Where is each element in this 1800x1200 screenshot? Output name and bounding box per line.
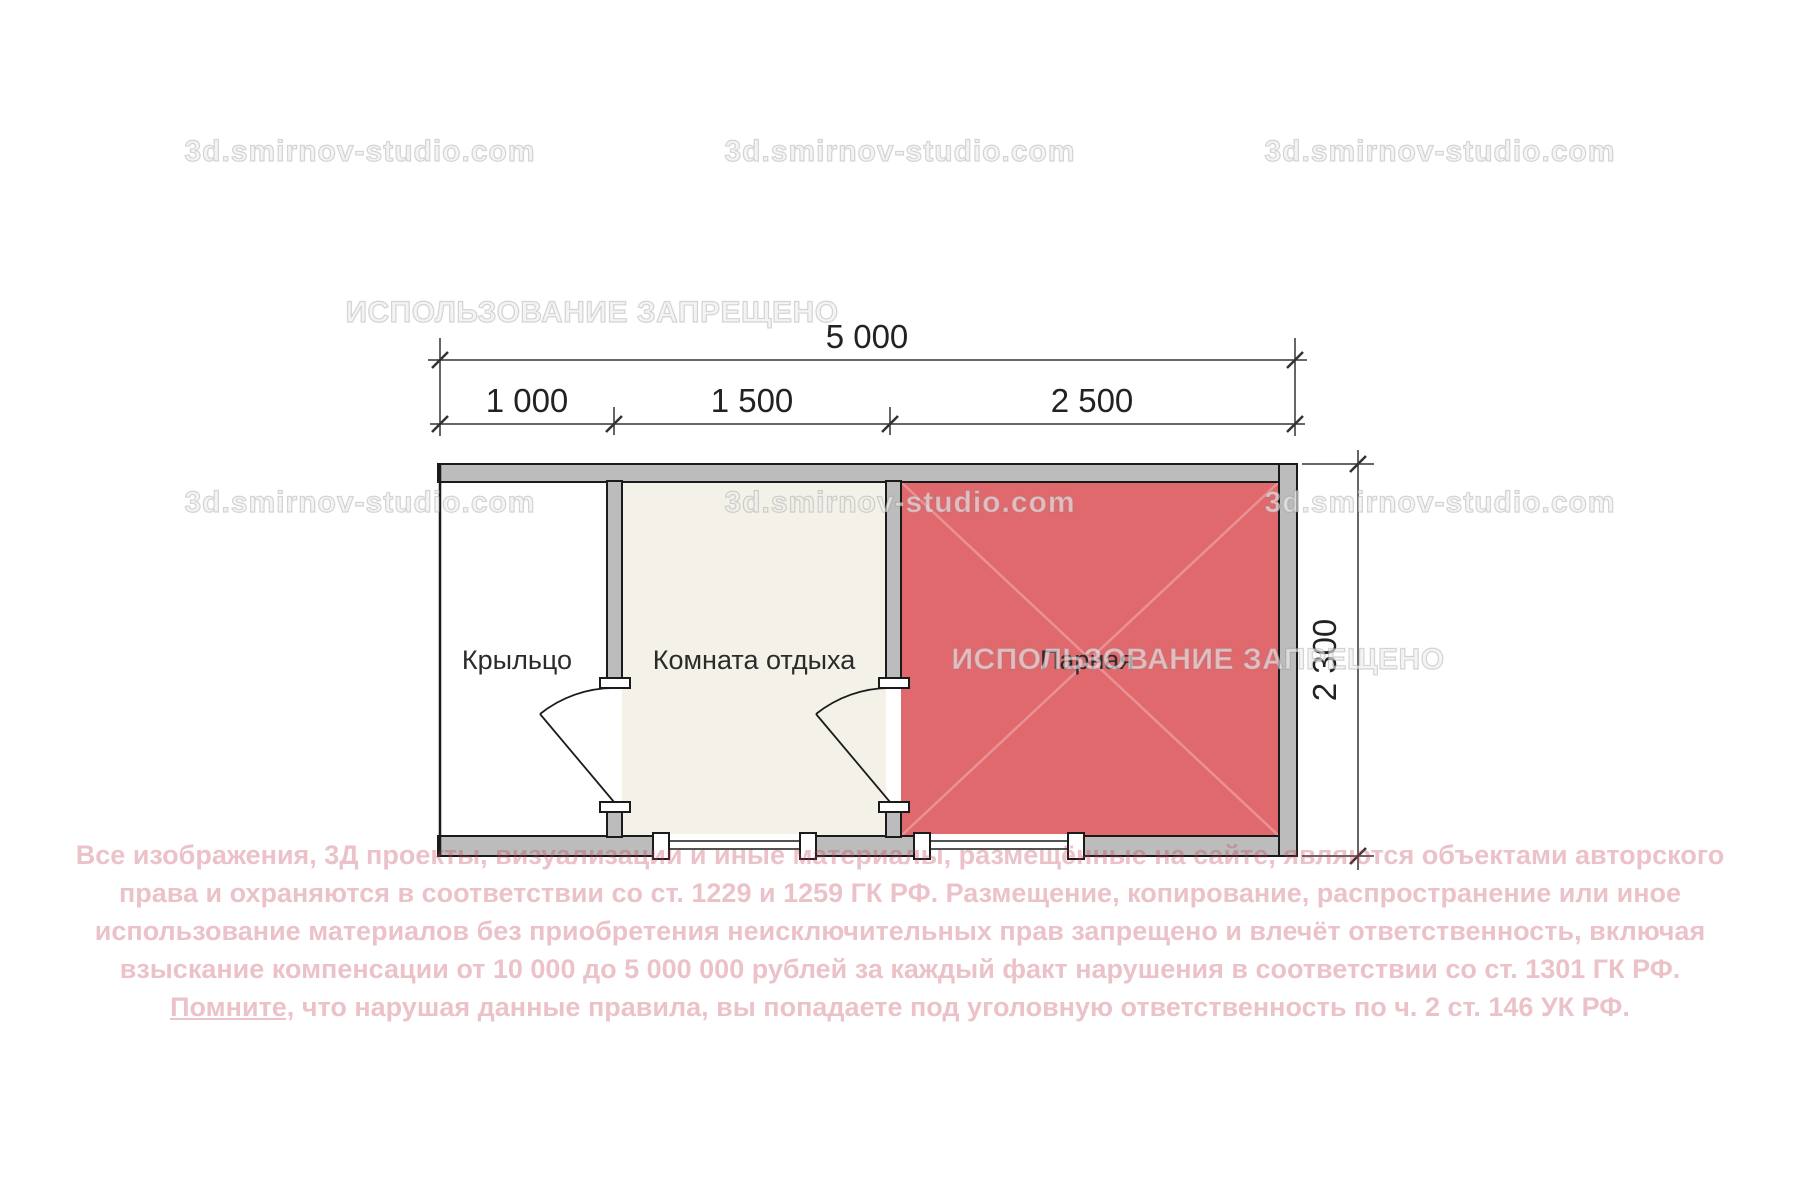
right-wall bbox=[1279, 464, 1297, 856]
room-label-porch: Крыльцо bbox=[462, 645, 572, 675]
floor-plan-page: Крыльцо Комната отдыха Парная bbox=[0, 0, 1800, 1200]
room-label-steam: Парная bbox=[1040, 645, 1134, 675]
dim-value-segment-2: 1 500 bbox=[711, 382, 794, 419]
partition-porch-lounge-stub bbox=[607, 812, 622, 837]
partition-lounge-steam bbox=[886, 481, 901, 678]
dim-value-height: 2 300 bbox=[1306, 619, 1343, 702]
top-wall bbox=[438, 464, 1297, 482]
window-steam bbox=[914, 833, 1084, 859]
door-jamb bbox=[879, 802, 909, 812]
partition-porch-lounge bbox=[607, 481, 622, 678]
floor-plan-drawing: Крыльцо Комната отдыха Парная bbox=[0, 0, 1800, 1200]
door-leaf bbox=[540, 714, 614, 802]
door-porch-lounge bbox=[540, 678, 630, 812]
partition-lounge-steam-stub bbox=[886, 812, 901, 837]
door-jamb bbox=[879, 678, 909, 688]
bottom-wall bbox=[438, 836, 1297, 856]
dim-value-total-width: 5 000 bbox=[826, 318, 909, 355]
dim-value-segment-3: 2 500 bbox=[1051, 382, 1134, 419]
window-lounge bbox=[653, 833, 816, 859]
dim-value-segment-1: 1 000 bbox=[486, 382, 569, 419]
room-label-lounge: Комната отдыха bbox=[653, 645, 856, 675]
door-jamb bbox=[600, 802, 630, 812]
door-jamb bbox=[600, 678, 630, 688]
door-swing-arc bbox=[540, 688, 614, 714]
